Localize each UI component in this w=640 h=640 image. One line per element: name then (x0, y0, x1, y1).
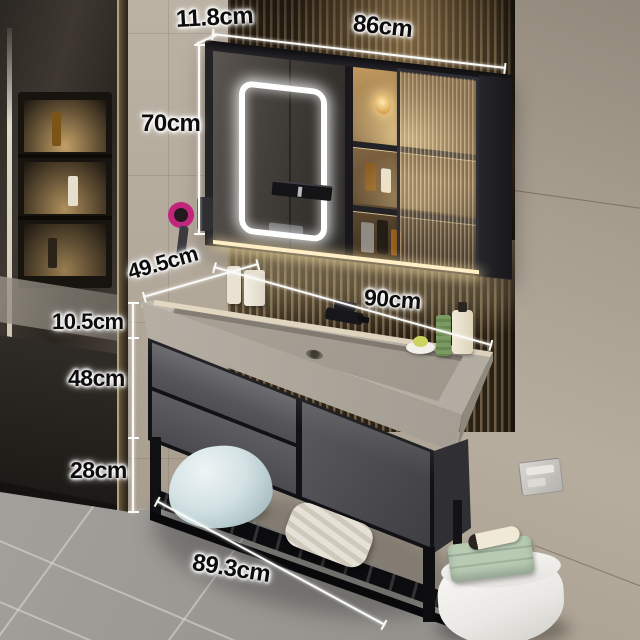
fluted-glass-tint (400, 71, 476, 270)
niche-shelf-glow (24, 162, 106, 214)
dim-label-counter-width: 90cm (363, 286, 421, 313)
fluted-glass-door (397, 68, 479, 273)
bathroom-product-photo: 11.8cm 86cm 70cm 49.5cm 90cm 10.5cm 48cm… (0, 0, 640, 640)
cabinet-divider (345, 66, 353, 258)
wall-seam (500, 188, 640, 210)
dim-label-mirror-depth: 11.8cm (175, 4, 253, 32)
pump-bottle-top (458, 302, 467, 312)
shower-glass-frame (117, 0, 128, 513)
shelf-bottle (377, 220, 388, 255)
niche-shelf-line (18, 216, 112, 220)
niche-shelf-glow (24, 224, 106, 276)
pump-bottle-cream (452, 310, 473, 354)
flush-plate (518, 458, 564, 497)
cabinet-right-side (479, 75, 512, 279)
mirror-cabinet (205, 40, 512, 280)
niche-bottle (48, 238, 57, 268)
niche-shelf-line (18, 154, 112, 158)
dim-tick (128, 302, 139, 304)
tile-grout (118, 322, 230, 323)
glass-niche-reflection (18, 92, 112, 288)
soap-bar (413, 336, 428, 347)
shower-glass-panel (0, 0, 124, 517)
dim-tick (194, 233, 205, 235)
dim-label-mirror-width: 86cm (352, 12, 414, 42)
dim-label-cabinet-height: 48cm (68, 367, 125, 390)
flush-button (526, 464, 555, 475)
dim-line-mirror-height (198, 44, 200, 235)
niche-bottle (52, 112, 61, 146)
mirror-door (213, 51, 345, 257)
tray-chrome-accent (297, 187, 302, 197)
dim-label-clearance-height: 28cm (70, 459, 127, 482)
shelf-canister (361, 222, 374, 253)
dim-label-mirror-height: 70cm (141, 112, 200, 136)
frame-highlight (117, 0, 119, 513)
niche-shelf-glow (24, 100, 106, 152)
dim-tick (194, 44, 205, 46)
stand-leg-front-right (423, 547, 435, 622)
bamboo-tumbler (436, 315, 451, 356)
towel-fold-lines (450, 557, 534, 569)
niche-bottle (68, 176, 78, 206)
dim-label-counter-thickness: 10.5cm (52, 311, 124, 333)
flush-button (527, 478, 546, 488)
dim-tick (128, 437, 139, 439)
led-mirror-frame (239, 80, 327, 243)
dim-tick (128, 511, 139, 513)
dim-tick (128, 337, 139, 339)
dim-line-left-heights (132, 302, 134, 513)
hair-dryer-ring (168, 202, 194, 228)
